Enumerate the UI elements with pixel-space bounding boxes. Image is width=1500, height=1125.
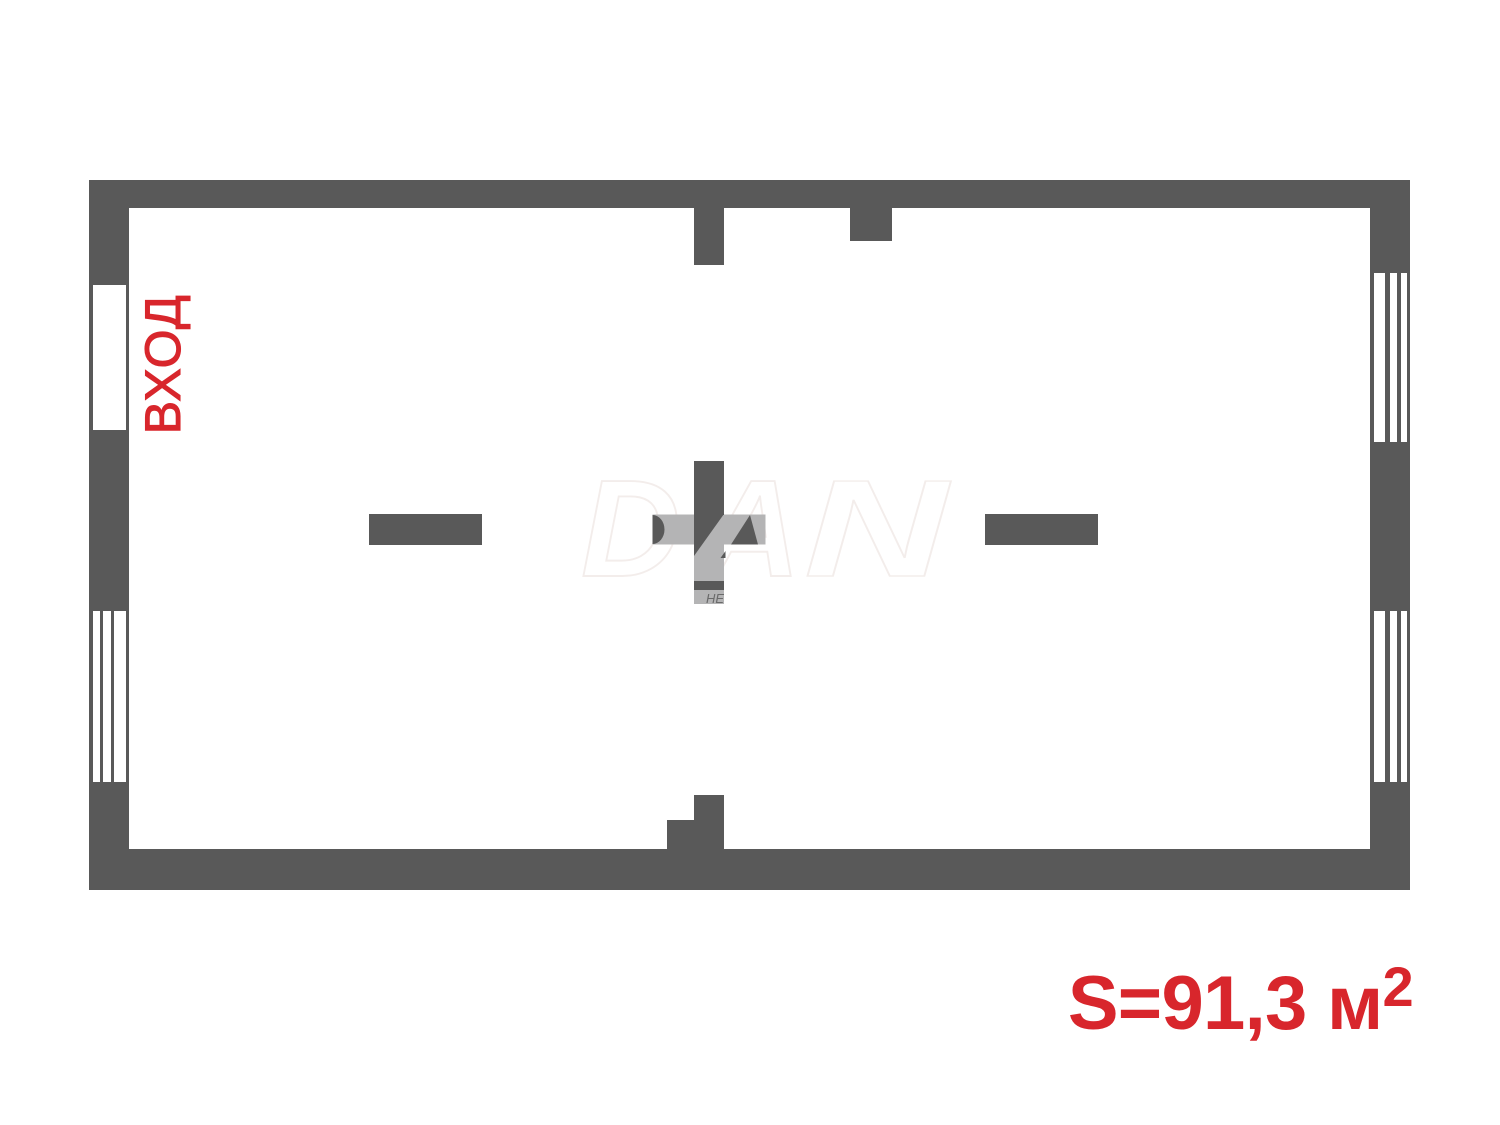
- svg-text:НЕ: НЕ: [706, 591, 724, 606]
